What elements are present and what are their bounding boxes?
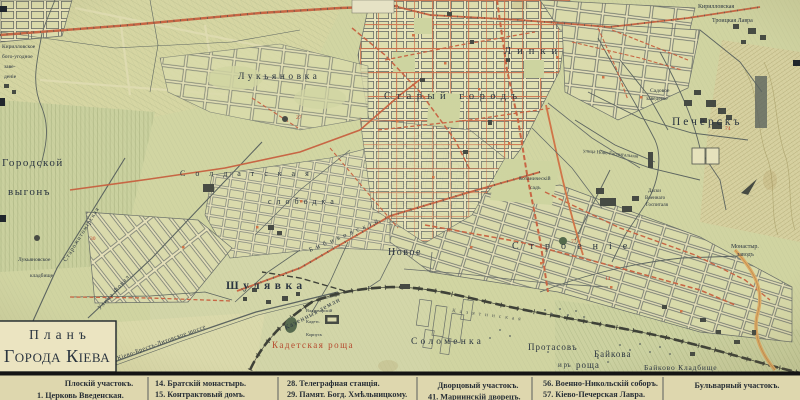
svg-text:Кирилловская: Кирилловская xyxy=(698,4,734,10)
svg-text:садъ: садъ xyxy=(530,185,541,191)
svg-text:Садовое: Садовое xyxy=(650,88,670,94)
svg-text:выгонъ: выгонъ xyxy=(8,186,51,198)
svg-text:Ботаническій: Ботаническій xyxy=(519,175,551,182)
svg-text:Даски: Даски xyxy=(648,189,661,194)
svg-text:и ръ: и ръ xyxy=(558,361,571,369)
svg-text:Липки: Липки xyxy=(504,46,563,57)
svg-text:слободка: слободка xyxy=(268,197,339,206)
svg-text:роща: роща xyxy=(576,360,600,370)
svg-text:1. Церковь Введенская.: 1. Церковь Введенская. xyxy=(37,391,124,400)
svg-text:Протасовъ: Протасовъ xyxy=(528,342,578,352)
svg-text:41. Мариинскій дворецъ.: 41. Мариинскій дворецъ. xyxy=(428,393,521,400)
svg-text:14: 14 xyxy=(605,276,611,282)
svg-text:Лукьяновское: Лукьяновское xyxy=(18,257,51,263)
svg-text:бого-угодное: бого-угодное xyxy=(2,53,33,60)
svg-text:27: 27 xyxy=(296,115,302,121)
svg-text:Байково Кладбище: Байково Кладбище xyxy=(644,363,717,372)
svg-text:29. Памят. Богд. Хмѣльницкому.: 29. Памят. Богд. Хмѣльницкому. xyxy=(287,390,407,399)
svg-text:заве-: заве- xyxy=(4,64,16,70)
svg-text:Планъ: Планъ xyxy=(29,327,91,342)
svg-text:Военнаго: Военнаго xyxy=(645,196,666,201)
svg-text:Города Кіева: Города Кіева xyxy=(4,346,110,366)
svg-text:77: 77 xyxy=(571,239,577,245)
svg-text:15. Контрактовый домъ.: 15. Контрактовый домъ. xyxy=(155,390,245,399)
svg-text:Монастыр.: Монастыр. xyxy=(731,244,759,250)
svg-text:Печерскъ: Печерскъ xyxy=(672,116,742,128)
svg-text:74: 74 xyxy=(725,126,731,132)
svg-text:Госпиталя: Госпиталя xyxy=(646,203,669,208)
svg-text:Корпусъ: Корпусъ xyxy=(306,332,323,337)
svg-text:28. Телеграфная станція.: 28. Телеграфная станція. xyxy=(287,379,380,388)
svg-text:Шулявка: Шулявка xyxy=(226,280,307,292)
svg-text:деніе: деніе xyxy=(4,74,17,80)
svg-text:Старый городъ: Старый городъ xyxy=(384,91,523,102)
svg-text:Кадетская роща: Кадетская роща xyxy=(272,340,354,350)
svg-text:Байкова: Байкова xyxy=(594,349,632,359)
svg-text:заведеніе: заведеніе xyxy=(646,96,668,102)
svg-text:Дворцовый участокъ.: Дворцовый участокъ. xyxy=(438,381,519,390)
svg-text:Новое: Новое xyxy=(388,247,422,258)
svg-text:Плоскій участокъ.: Плоскій участокъ. xyxy=(65,379,133,388)
svg-text:14. Братскій монастырь.: 14. Братскій монастырь. xyxy=(155,379,246,388)
svg-text:57. Кіево-Печерская Лавра.: 57. Кіево-Печерская Лавра. xyxy=(543,390,645,399)
svg-text:Городской: Городской xyxy=(2,157,64,169)
svg-text:Соломенка: Соломенка xyxy=(411,337,484,347)
svg-text:Лукьяновка: Лукьяновка xyxy=(238,72,320,82)
svg-text:заводъ: заводъ xyxy=(737,252,754,258)
svg-text:кладбище: кладбище xyxy=(30,272,54,279)
svg-text:Кирилловское: Кирилловское xyxy=(2,44,36,50)
svg-text:Солдатская: Солдатская xyxy=(180,169,319,178)
svg-text:Бульварный участокъ.: Бульварный участокъ. xyxy=(695,381,780,390)
svg-text:56. Военно-Никольскій соборъ.: 56. Военно-Никольскій соборъ. xyxy=(543,379,658,388)
svg-text:8: 8 xyxy=(447,228,450,234)
svg-text:30: 30 xyxy=(90,236,96,242)
svg-text:Троицкая Лавра: Троицкая Лавра xyxy=(712,18,753,24)
